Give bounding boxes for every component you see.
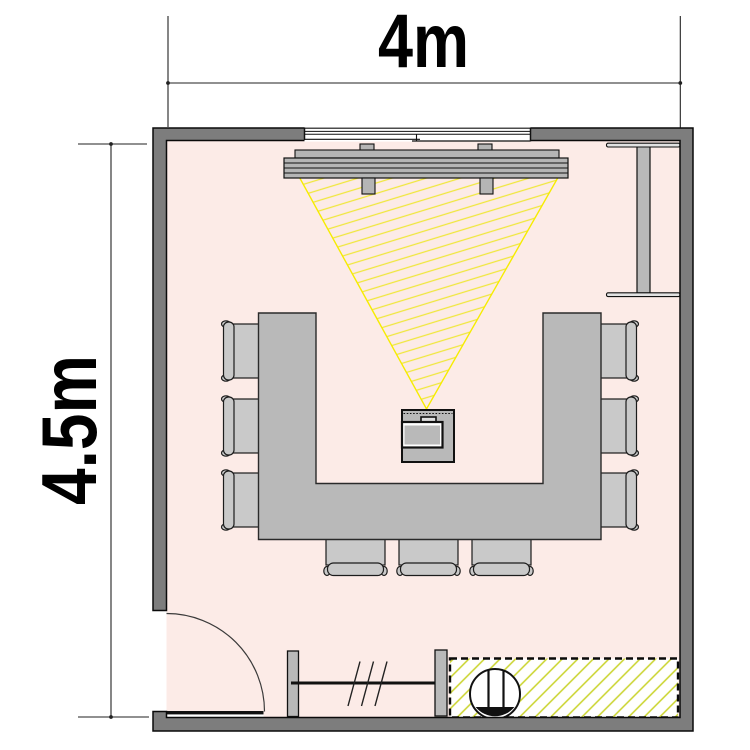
svg-text:4.5m: 4.5m [25,355,113,505]
svg-text:4m: 4m [378,0,469,84]
